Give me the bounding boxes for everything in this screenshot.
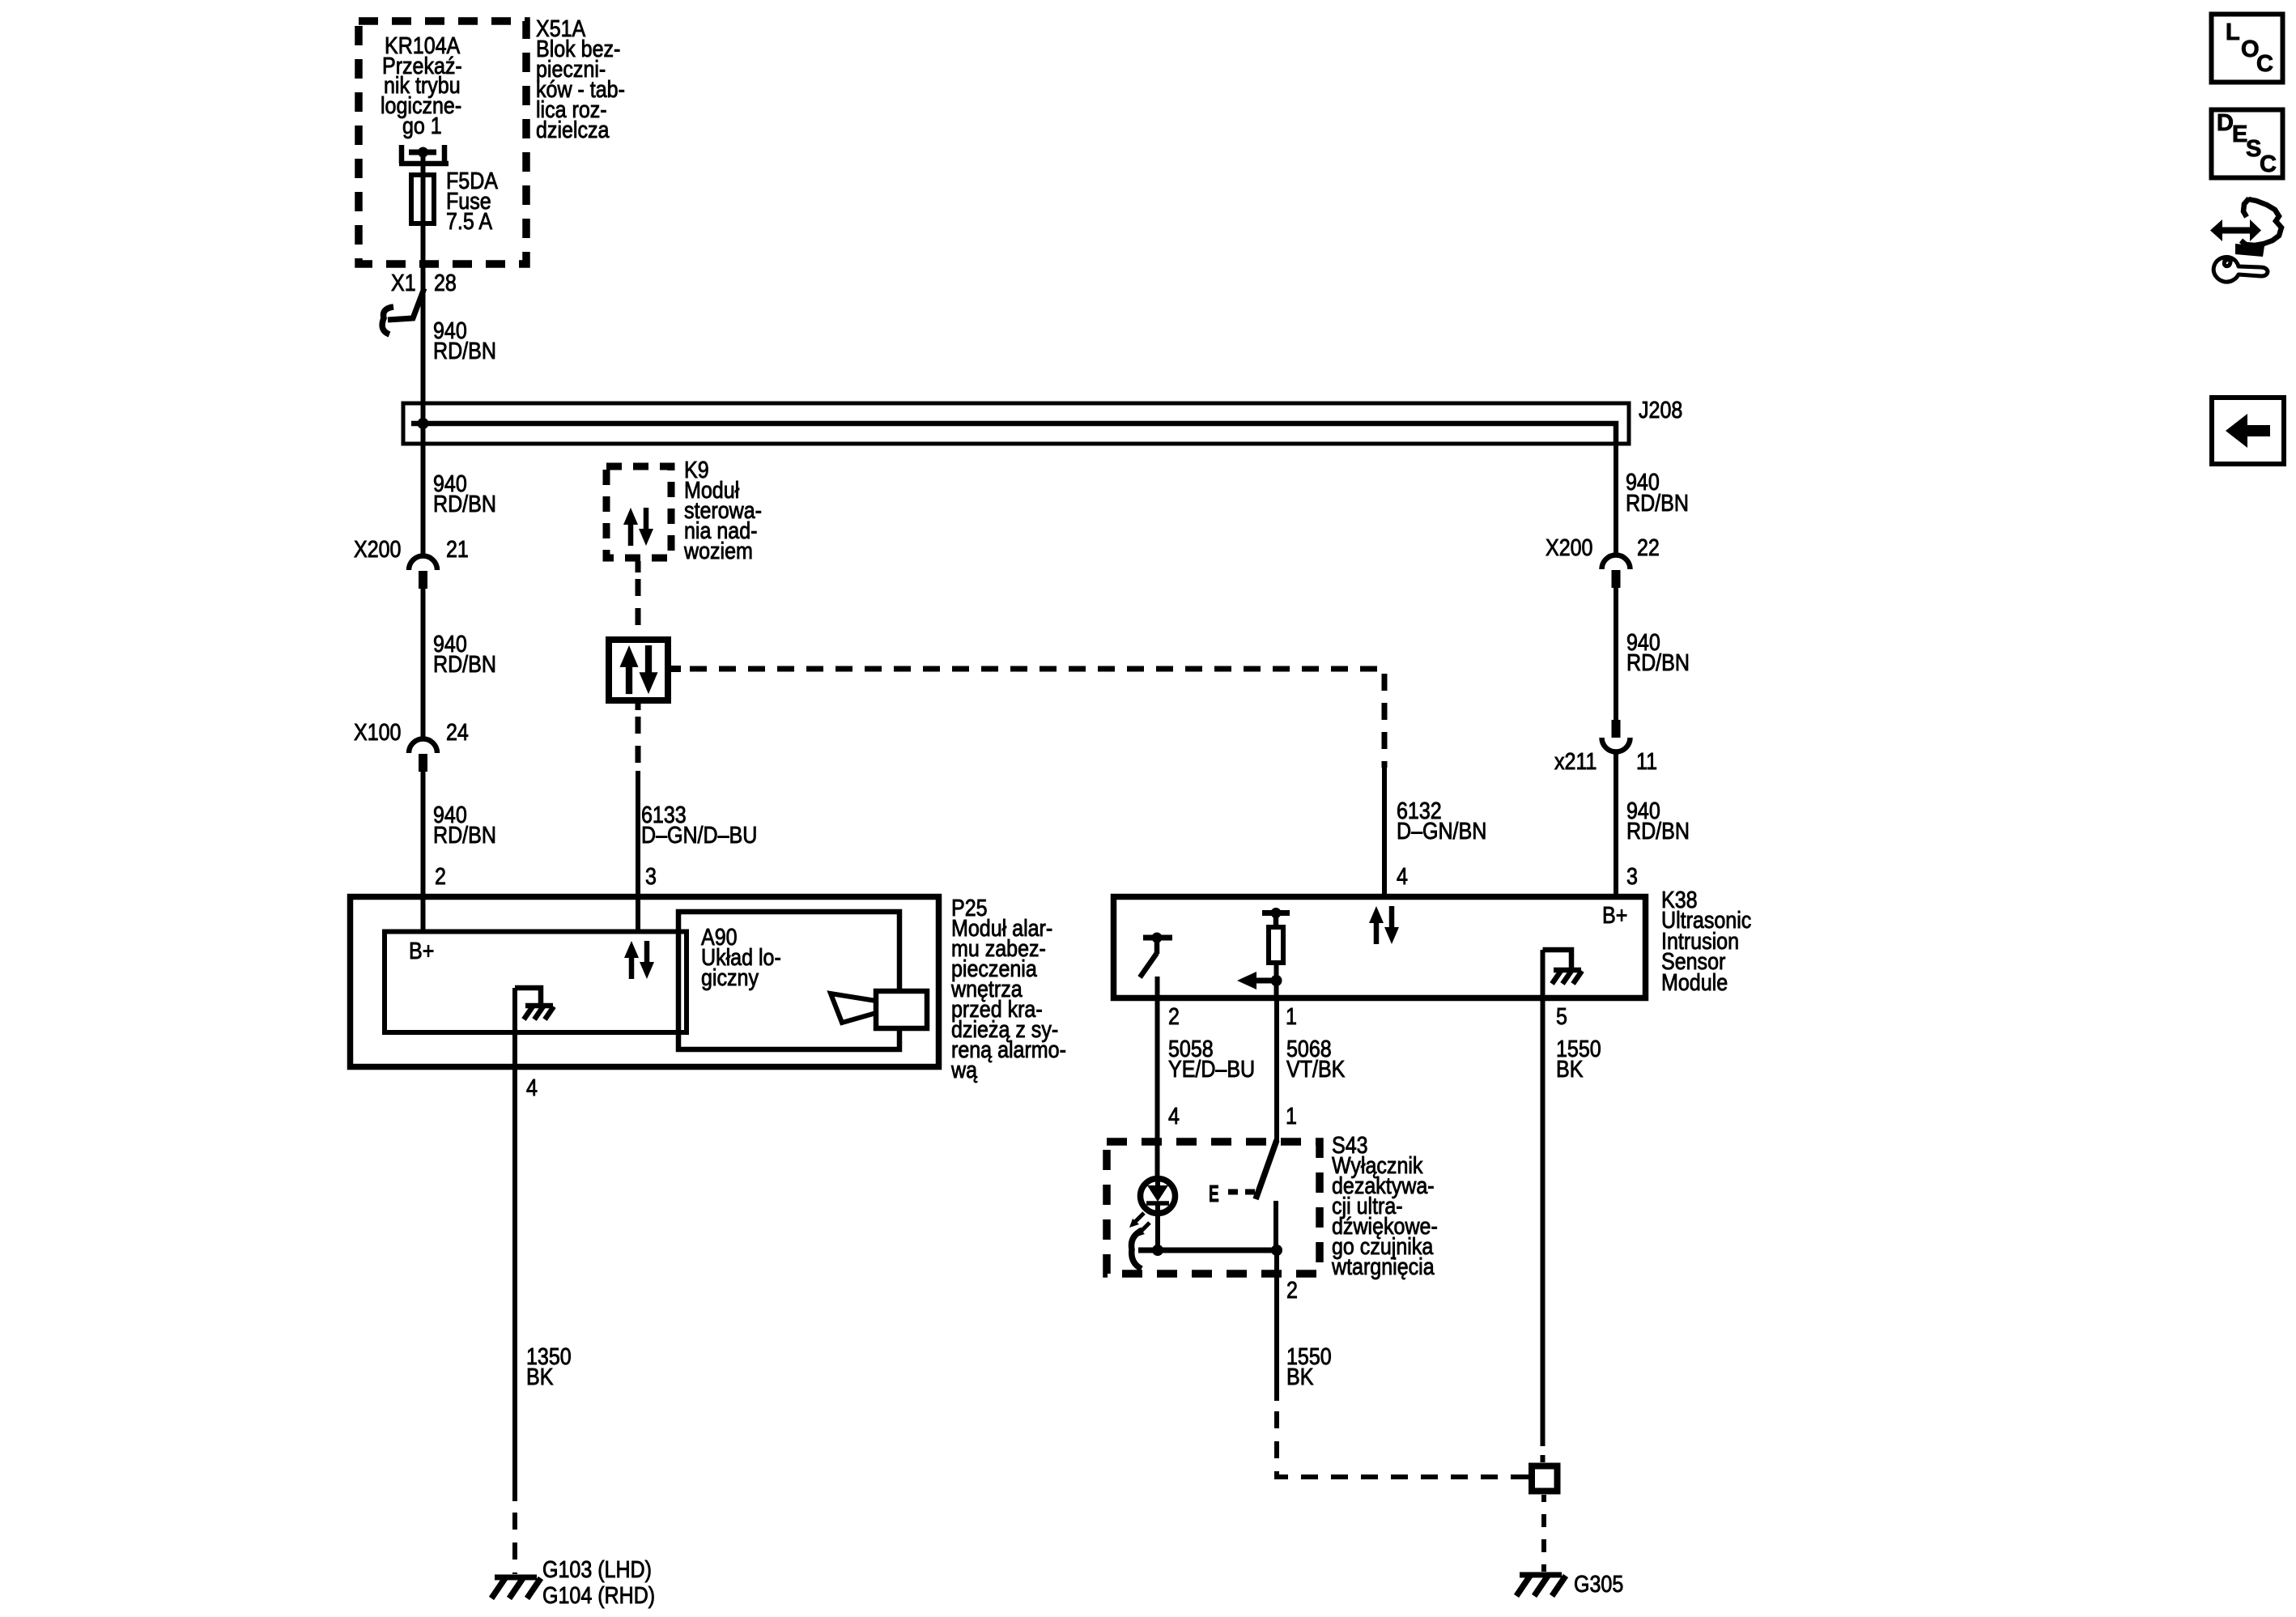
svg-text:4: 4: [526, 1074, 538, 1100]
svg-text:B+: B+: [1602, 901, 1627, 928]
svg-text:1: 1: [1286, 1002, 1297, 1029]
svg-text:21: 21: [446, 535, 469, 562]
svg-text:1: 1: [1286, 1102, 1297, 1129]
svg-text:D–GN/BN: D–GN/BN: [1397, 817, 1486, 844]
svg-text:J208: J208: [1639, 396, 1682, 423]
svg-text:3: 3: [1626, 862, 1638, 889]
svg-text:BK: BK: [1556, 1055, 1583, 1082]
svg-text:giczny: giczny: [701, 964, 759, 990]
svg-text:B+: B+: [409, 937, 434, 964]
svg-text:BK: BK: [1286, 1363, 1313, 1389]
svg-text:RD/BN: RD/BN: [1626, 489, 1689, 516]
svg-text:5: 5: [1556, 1002, 1567, 1029]
svg-text:BK: BK: [526, 1363, 553, 1389]
svg-text:go 1: go 1: [402, 112, 442, 138]
svg-text:7.5 A: 7.5 A: [446, 207, 493, 234]
svg-text:4: 4: [1168, 1102, 1180, 1129]
svg-text:dzielcza: dzielcza: [536, 116, 610, 143]
svg-text:4: 4: [1397, 862, 1408, 889]
svg-text:RD/BN: RD/BN: [433, 337, 496, 364]
svg-text:woziem: woziem: [683, 537, 753, 564]
svg-text:X1: X1: [391, 269, 416, 296]
svg-text:wtargnięcia: wtargnięcia: [1331, 1253, 1435, 1279]
svg-text:28: 28: [434, 269, 457, 296]
svg-text:G104 (RHD): G104 (RHD): [542, 1581, 655, 1608]
svg-text:G103 (LHD): G103 (LHD): [542, 1555, 652, 1582]
svg-text:x211: x211: [1554, 747, 1597, 774]
svg-text:YE/D–BU: YE/D–BU: [1168, 1055, 1255, 1082]
svg-text:D–GN/D–BU: D–GN/D–BU: [641, 821, 757, 848]
svg-text:D: D: [2217, 110, 2234, 136]
svg-text:G305: G305: [1574, 1570, 1623, 1597]
svg-text:wą: wą: [950, 1056, 978, 1083]
svg-text:3: 3: [645, 862, 657, 889]
svg-text:2: 2: [1286, 1276, 1298, 1303]
svg-text:RD/BN: RD/BN: [433, 821, 496, 848]
svg-text:L: L: [2226, 19, 2240, 45]
svg-text:E: E: [1209, 1181, 1219, 1207]
svg-text:11: 11: [1636, 747, 1657, 774]
svg-text:C: C: [2256, 51, 2273, 77]
svg-text:VT/BK: VT/BK: [1286, 1055, 1345, 1082]
svg-text:2: 2: [1168, 1002, 1180, 1029]
svg-text:RD/BN: RD/BN: [1626, 649, 1690, 675]
svg-text:X100: X100: [354, 718, 401, 745]
svg-text:X200: X200: [1546, 534, 1592, 560]
svg-text:RD/BN: RD/BN: [1626, 817, 1690, 844]
svg-text:RD/BN: RD/BN: [433, 490, 496, 517]
svg-text:24: 24: [446, 718, 469, 745]
svg-text:22: 22: [1637, 534, 1660, 560]
svg-text:2: 2: [435, 862, 446, 889]
svg-text:RD/BN: RD/BN: [433, 650, 496, 677]
svg-text:Module: Module: [1661, 968, 1728, 995]
svg-text:C: C: [2260, 151, 2277, 177]
svg-text:X200: X200: [354, 535, 401, 562]
